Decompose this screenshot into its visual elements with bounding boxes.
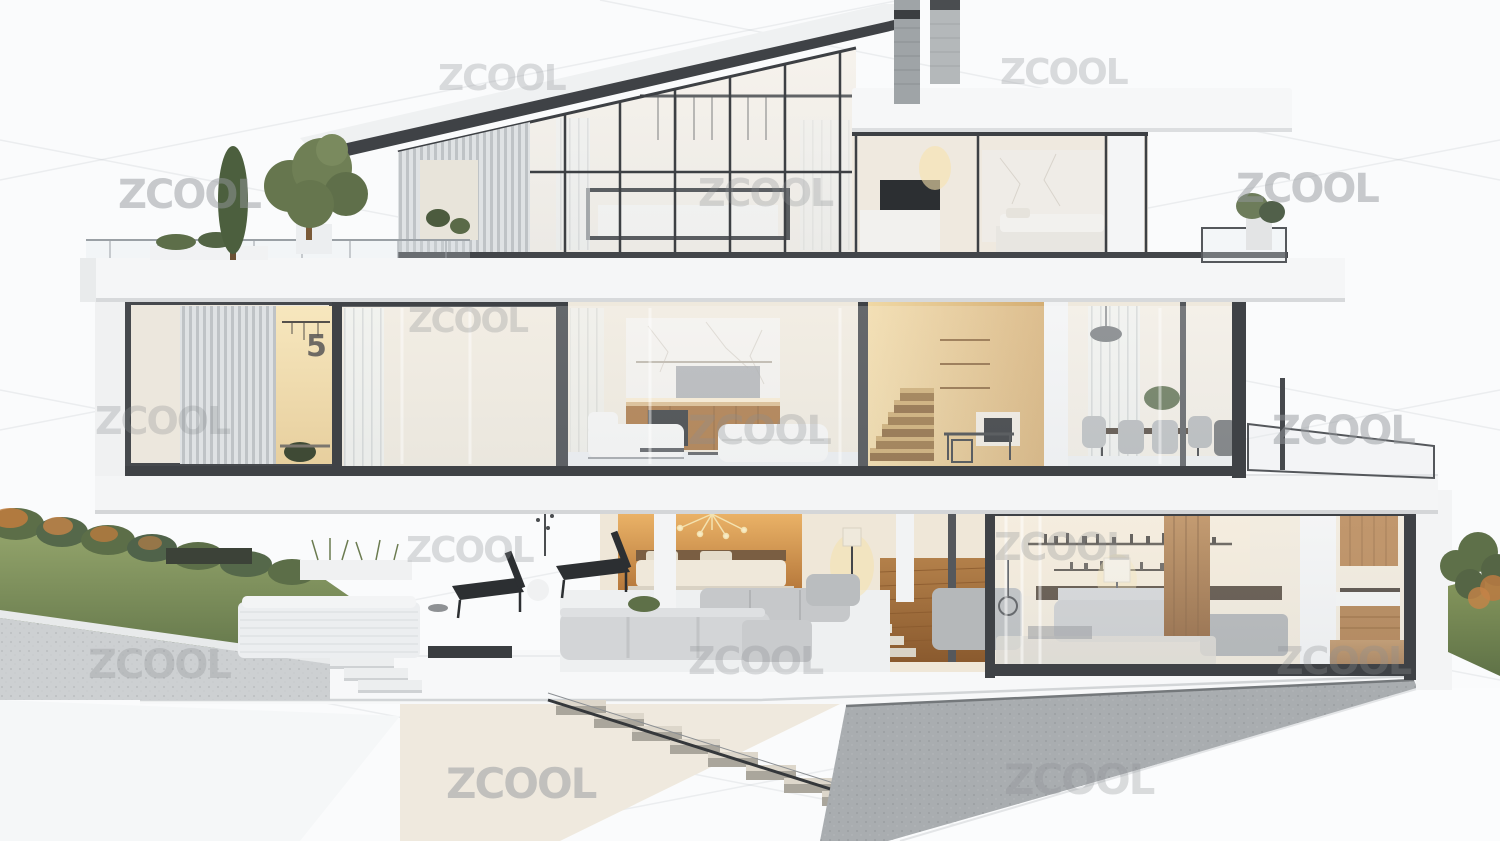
chimney-right bbox=[930, 0, 960, 84]
zcool-watermark: ZCOOL bbox=[118, 172, 261, 218]
zcool-watermark: ZCOOL bbox=[688, 639, 824, 683]
planter-box bbox=[300, 560, 412, 580]
column bbox=[1108, 132, 1144, 252]
wall-numeral: 5 bbox=[306, 329, 327, 364]
zcool-watermark: ZCOOL bbox=[438, 58, 566, 99]
zcool-watermark: ZCOOL bbox=[1004, 755, 1155, 804]
armchair bbox=[806, 574, 860, 606]
indoor-plant bbox=[628, 596, 660, 612]
glass-railing bbox=[1202, 228, 1286, 262]
zcool-watermark: ZCOOL bbox=[994, 525, 1130, 569]
zcool-watermark: ZCOOL bbox=[1000, 52, 1128, 93]
zcool-watermark: ZCOOL bbox=[446, 759, 597, 808]
zcool-watermark: ZCOOL bbox=[95, 399, 231, 443]
zcool-watermark: ZCOOL bbox=[406, 530, 534, 571]
middle-slab bbox=[95, 474, 1438, 514]
tree-pot bbox=[296, 224, 332, 254]
terrace-slab bbox=[80, 252, 1345, 302]
zcool-watermark: ZCOOL bbox=[688, 408, 831, 454]
zcool-watermark: ZCOOL bbox=[1272, 408, 1415, 454]
zcool-watermark: ZCOOL bbox=[1236, 166, 1379, 212]
low-table bbox=[428, 646, 512, 658]
zcool-watermark: ZCOOL bbox=[88, 642, 231, 688]
master-bedroom bbox=[618, 514, 802, 599]
sunken-planter bbox=[166, 548, 252, 564]
fire-bowl bbox=[428, 604, 448, 612]
house-cutaway-render: 5 bbox=[0, 0, 1500, 841]
cabinet bbox=[860, 210, 940, 252]
outdoor-sofa bbox=[238, 596, 420, 658]
zcool-watermark: ZCOOL bbox=[408, 301, 528, 341]
side-table bbox=[527, 579, 549, 601]
zcool-watermark: ZCOOL bbox=[1276, 639, 1412, 683]
chimney-left bbox=[894, 0, 920, 104]
zcool-watermark: ZCOOL bbox=[698, 171, 834, 215]
floor-sill bbox=[125, 466, 1238, 476]
